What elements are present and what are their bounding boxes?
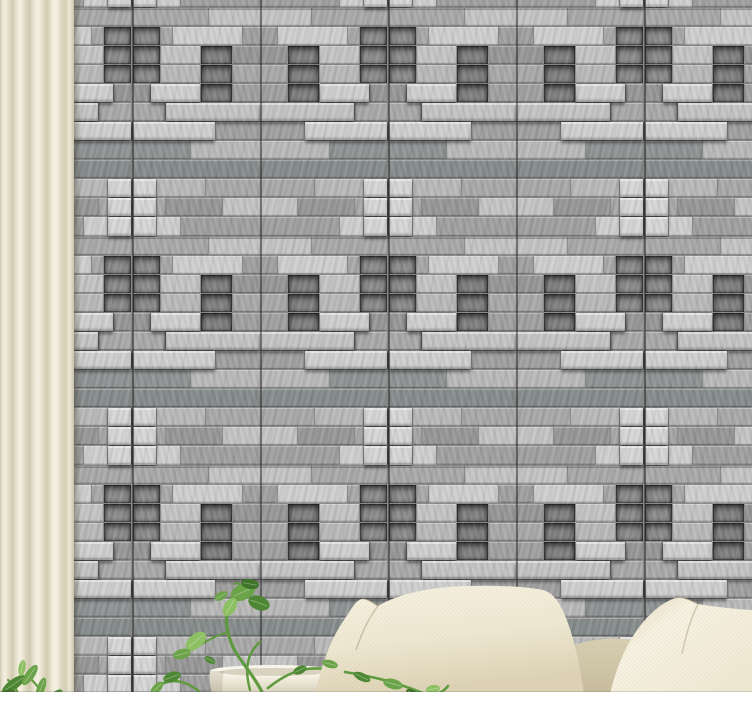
floor-strip bbox=[0, 692, 752, 703]
furnishings-overlay bbox=[0, 0, 752, 703]
interior-scene bbox=[0, 0, 752, 703]
right-cushion bbox=[610, 597, 752, 694]
